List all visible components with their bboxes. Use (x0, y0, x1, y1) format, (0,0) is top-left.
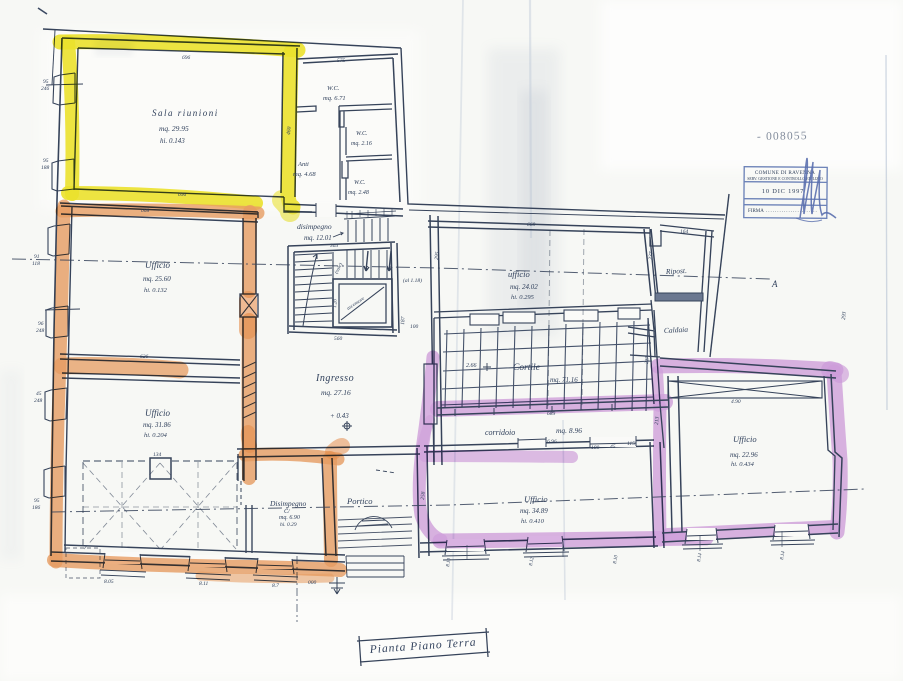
svg-text:mq. 25.60: mq. 25.60 (143, 275, 171, 283)
svg-text:+ 0.43: + 0.43 (330, 412, 349, 420)
svg-text:164: 164 (680, 228, 689, 235)
svg-text:668: 668 (527, 222, 536, 228)
svg-text:258: 258 (420, 491, 427, 500)
svg-text:000: 000 (308, 580, 317, 586)
svg-text:8.05: 8.05 (104, 579, 114, 585)
svg-text:45: 45 (36, 390, 42, 397)
svg-text:95: 95 (43, 158, 49, 164)
svg-text:Ufficio: Ufficio (524, 494, 548, 504)
svg-text:246: 246 (41, 85, 50, 92)
svg-text:689: 689 (547, 411, 556, 417)
svg-text:mq. 22.96: mq. 22.96 (730, 451, 758, 459)
svg-text:mq. 8.96: mq. 8.96 (556, 426, 582, 435)
svg-text:4.90: 4.90 (731, 398, 741, 405)
svg-text:187: 187 (400, 316, 407, 325)
svg-text:696: 696 (178, 192, 187, 198)
svg-text:8.11: 8.11 (199, 581, 208, 587)
svg-text:118: 118 (32, 261, 40, 267)
svg-text:ufficio: ufficio (508, 269, 530, 279)
svg-text:2.66: 2.66 (466, 363, 477, 369)
svg-text:188: 188 (41, 165, 50, 171)
svg-text:hi. 0.143: hi. 0.143 (160, 137, 185, 145)
svg-text:mq. 6.71: mq. 6.71 (323, 95, 346, 102)
svg-text:W.C.: W.C. (327, 85, 340, 92)
svg-text:Ingresso: Ingresso (315, 373, 354, 384)
svg-text:213: 213 (654, 416, 661, 425)
svg-text:A: A (771, 279, 778, 289)
svg-text:Ripost.: Ripost. (665, 266, 688, 276)
svg-text:mq. 31.86: mq. 31.86 (143, 421, 171, 429)
svg-text:575: 575 (337, 58, 346, 64)
svg-text:91: 91 (34, 254, 40, 260)
svg-text:Portico: Portico (346, 496, 373, 506)
svg-text:mq. 2.16: mq. 2.16 (351, 141, 372, 147)
svg-text:45: 45 (610, 443, 616, 450)
svg-text:mq. 34.89: mq. 34.89 (520, 507, 548, 515)
svg-text:mq. 27.16: mq. 27.16 (321, 388, 351, 397)
svg-text:6.96: 6.96 (547, 439, 557, 445)
svg-text:hi. 0.434: hi. 0.434 (731, 461, 755, 468)
svg-text:626: 626 (140, 354, 149, 360)
svg-text:W.C.: W.C. (356, 131, 367, 137)
svg-text:100: 100 (410, 324, 419, 330)
svg-text:mq. 29.95: mq. 29.95 (159, 124, 189, 133)
svg-text:295: 295 (434, 251, 441, 260)
svg-text:mq. 24.02: mq. 24.02 (510, 283, 538, 291)
svg-text:FIRMA: FIRMA (748, 209, 764, 214)
svg-text:mq. 12.01: mq. 12.01 (304, 234, 332, 242)
svg-text:W.C.: W.C. (354, 180, 365, 186)
svg-text:696: 696 (182, 55, 191, 61)
svg-text:Ufficio: Ufficio (145, 408, 170, 418)
svg-text:1.20: 1.20 (333, 299, 339, 309)
svg-text:(al 1.18): (al 1.18) (403, 277, 422, 284)
svg-text:Ufficio: Ufficio (733, 434, 757, 444)
svg-text:293: 293 (841, 311, 848, 320)
svg-text:mq. 4.68: mq. 4.68 (293, 171, 316, 178)
svg-text:460: 460 (285, 126, 293, 135)
svg-text:hi. 0.132: hi. 0.132 (144, 287, 168, 294)
svg-text:560: 560 (334, 336, 343, 342)
svg-text:227: 227 (645, 356, 651, 364)
svg-text:hi. 0.204: hi. 0.204 (144, 432, 168, 439)
svg-text:Sala riunioni: Sala riunioni (152, 108, 219, 118)
svg-text:186: 186 (32, 505, 41, 511)
svg-text:mq. 71.16: mq. 71.16 (550, 376, 578, 384)
svg-text:Disimpegno: Disimpegno (269, 499, 306, 508)
svg-text:248: 248 (36, 327, 45, 334)
svg-text:mq. 2.48: mq. 2.48 (348, 189, 369, 196)
svg-text:96: 96 (38, 321, 44, 327)
svg-text:Anti: Anti (297, 161, 309, 168)
svg-text:248: 248 (34, 397, 43, 404)
svg-text:10 DIC 1997: 10 DIC 1997 (762, 188, 804, 195)
svg-text:95: 95 (34, 498, 40, 504)
svg-text:hi. 0.295: hi. 0.295 (511, 294, 535, 301)
svg-text:Cortile: Cortile (513, 363, 540, 373)
svg-text:8.7: 8.7 (272, 583, 279, 589)
svg-text:180: 180 (591, 445, 600, 451)
svg-text:disimpegno: disimpegno (297, 222, 332, 231)
svg-text:608: 608 (141, 208, 150, 214)
svg-text:corridoio: corridoio (485, 428, 515, 437)
svg-text:mq. 6.90: mq. 6.90 (279, 515, 300, 521)
svg-text:237: 237 (648, 251, 655, 260)
svg-text:115: 115 (627, 441, 635, 447)
svg-text:- 008055: - 008055 (757, 130, 808, 143)
svg-text:95: 95 (43, 79, 49, 85)
svg-text:.......................: ....................... (766, 209, 818, 214)
svg-text:Ufficio: Ufficio (145, 260, 170, 270)
svg-text:hi. 0.410: hi. 0.410 (521, 518, 545, 525)
svg-text:134: 134 (153, 451, 162, 458)
svg-text:Caldaia: Caldaia (664, 325, 689, 335)
svg-text:hi. 0.29: hi. 0.29 (280, 522, 297, 528)
svg-text:363: 363 (329, 243, 339, 249)
